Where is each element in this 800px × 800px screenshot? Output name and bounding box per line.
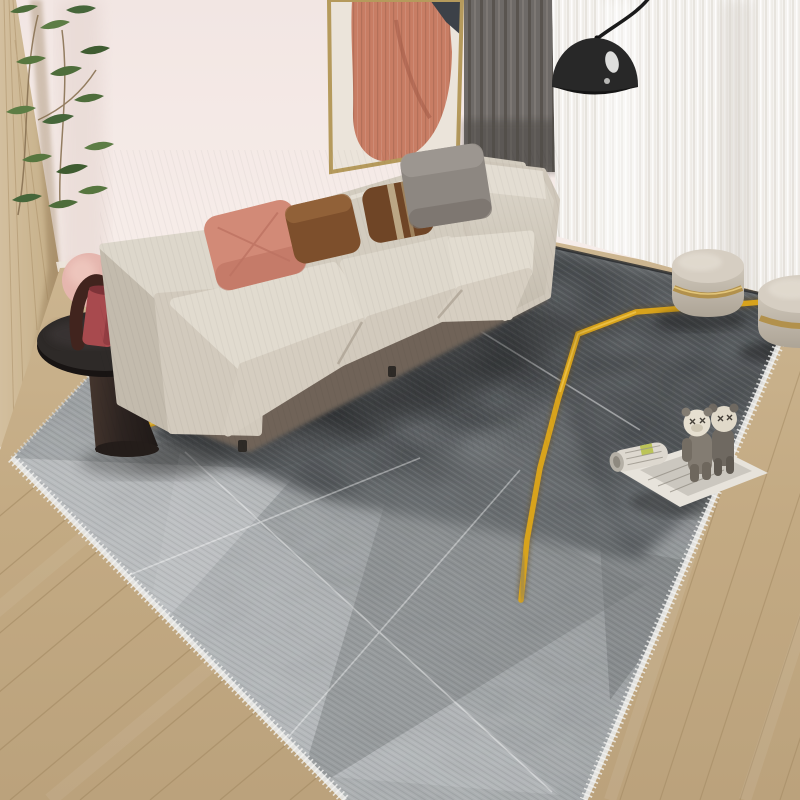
plush-arm	[682, 438, 692, 462]
lamp-highlight-dot	[604, 78, 610, 84]
pouf-2	[758, 275, 800, 348]
pouf-1	[672, 249, 744, 317]
sofa	[100, 142, 560, 452]
artwork	[329, 0, 462, 172]
plush-ear	[730, 404, 739, 413]
plush-ear	[704, 408, 713, 417]
plush-snout	[691, 424, 703, 432]
plush-ear	[682, 408, 691, 417]
sofa-fabric-texture	[100, 150, 560, 450]
scene-canvas	[0, 0, 800, 800]
sofa-seats	[100, 150, 560, 450]
living-room-photo	[0, 0, 800, 800]
pillow-gray	[399, 142, 494, 230]
gold-line-fade	[521, 555, 524, 600]
plush-figures	[682, 404, 739, 483]
